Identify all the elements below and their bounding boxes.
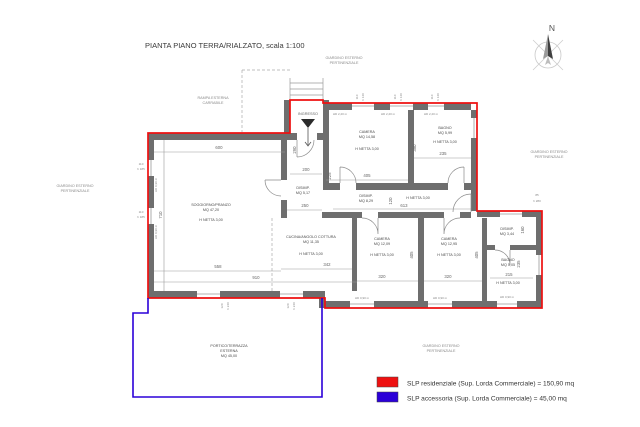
svg-text:h 280: h 280 xyxy=(533,199,541,203)
room-disimp3: DISIMP. xyxy=(500,227,513,231)
svg-text:h 140: h 140 xyxy=(361,93,365,101)
dim-235-bagno-sud: 235 xyxy=(516,260,521,268)
svg-text:MQ 14,58: MQ 14,58 xyxy=(359,135,375,139)
ingresso-label: INGRESSO xyxy=(298,112,318,116)
dim-160: 160 xyxy=(520,226,525,234)
dim-235-bagno-nord: 235 xyxy=(439,151,447,156)
svg-text:H NETTA 3,00: H NETTA 3,00 xyxy=(433,140,457,144)
svg-text:H NETTA 3,00: H NETTA 3,00 xyxy=(437,253,461,257)
sill-label-left-2: HD 0,90 m xyxy=(154,224,158,239)
dim-290: 290 xyxy=(292,146,297,154)
svg-text:H NETTA 3,00: H NETTA 3,00 xyxy=(355,147,379,151)
svg-text:H NETTA 3,00: H NETTA 3,00 xyxy=(496,281,520,285)
room-soggiorno: SOGGIORNO/PRANZO xyxy=(191,203,231,207)
dim-405-camera-se: 405 xyxy=(474,251,479,259)
floor-plan-canvas: PIANTA PIANO TERRA/RIALZATO, scala 1:100… xyxy=(0,0,640,427)
svg-text:MQ 3,44: MQ 3,44 xyxy=(500,232,514,236)
compass-icon: N xyxy=(533,23,563,70)
dim-320-camera-so: 320 xyxy=(378,274,386,279)
sill-label-high-3: HD 2,20 m xyxy=(424,112,439,116)
room-disimp1: DISIMP. xyxy=(296,186,309,190)
room-camera-se: CAMERA xyxy=(441,237,457,241)
svg-text:H NETTA 3,00: H NETTA 3,00 xyxy=(370,253,394,257)
window-label-top-2: 110 xyxy=(393,94,397,99)
rampa-label: RAMPA ESTERNA xyxy=(197,96,229,100)
compass-north-label: N xyxy=(549,23,555,33)
dim-910: 910 xyxy=(252,275,260,280)
door-label-portico-2: 120 xyxy=(286,303,290,308)
sill-label-low-3: HD 0,90 m xyxy=(500,295,515,299)
svg-text:H NETTA 3,00: H NETTA 3,00 xyxy=(406,196,430,200)
window-label-left-2: 110 xyxy=(139,210,144,214)
entrance-arrow-icon xyxy=(301,119,315,146)
giardino-label-west: GIARDINO ESTERNO xyxy=(56,184,93,188)
svg-text:h 185: h 185 xyxy=(137,215,145,219)
svg-text:MQ 12,95: MQ 12,95 xyxy=(441,242,457,246)
giardino-label-east: GIARDINO ESTERNO xyxy=(530,150,567,154)
svg-text:PERTINENZIALE: PERTINENZIALE xyxy=(330,61,359,65)
dim-250: 250 xyxy=(301,203,309,208)
dim-215: 215 xyxy=(505,272,513,277)
legend-label-residenziale: SLP residenziale (Sup. Lorda Commerciale… xyxy=(407,381,575,388)
svg-text:MQ 47,20: MQ 47,20 xyxy=(203,208,219,212)
svg-text:h 185: h 185 xyxy=(137,167,145,171)
sill-label-low-1: HD 0,90 m xyxy=(355,296,370,300)
svg-text:MQ 8,29: MQ 8,29 xyxy=(359,199,373,203)
svg-text:MQ 5,99: MQ 5,99 xyxy=(438,131,452,135)
room-portico: PORTICO/TERRAZZA xyxy=(210,344,248,348)
dim-200: 200 xyxy=(302,167,310,172)
window-label-left-1: 110 xyxy=(139,162,144,166)
dim-405-camera-nord: 405 xyxy=(363,173,371,178)
dim-613: 613 xyxy=(400,203,408,208)
sill-label-high-1: HD 2,20 m xyxy=(333,112,348,116)
dim-558: 558 xyxy=(214,264,222,269)
drawing-sheet: PIANTA PIANO TERRA/RIALZATO, scala 1:100… xyxy=(0,0,640,427)
room-cucina: CUCINA/ANGOLO COTTURA xyxy=(286,235,336,239)
svg-text:PERTINENZIALE: PERTINENZIALE xyxy=(535,155,564,159)
svg-text:CARRABILE: CARRABILE xyxy=(203,101,224,105)
svg-text:h 140: h 140 xyxy=(436,93,440,101)
page-title: PIANTA PIANO TERRA/RIALZATO, scala 1:100 xyxy=(145,41,305,50)
sill-label-high-2: HD 2,20 m xyxy=(381,112,396,116)
svg-text:MQ 45,00: MQ 45,00 xyxy=(221,354,237,358)
legend-label-accessoria: SLP accessoria (Sup. Lorda Commerciale) … xyxy=(407,396,567,403)
svg-text:MQ 5,05: MQ 5,05 xyxy=(501,263,515,267)
sill-label-left-1: HD 0,90 m xyxy=(154,177,158,192)
svg-text:PERTINENZIALE: PERTINENZIALE xyxy=(427,349,456,353)
window-label-top-3: 110 xyxy=(430,94,434,99)
dim-405-camera-so: 405 xyxy=(409,251,414,259)
svg-text:h 240: h 240 xyxy=(292,302,296,310)
dim-350: 350 xyxy=(412,144,417,152)
room-camera-so: CAMERA xyxy=(374,237,390,241)
room-bagno-nord: BAGNO xyxy=(438,126,451,130)
giardino-label-north: GIARDINO ESTERNO xyxy=(325,56,362,60)
svg-text:PERTINENZIALE: PERTINENZIALE xyxy=(61,189,90,193)
legend-swatch-residenziale xyxy=(377,377,398,387)
giardino-label-south: GIARDINO ESTERNO xyxy=(422,344,459,348)
dim-85: 85 xyxy=(535,193,539,197)
svg-text:H NETTA 3,00: H NETTA 3,00 xyxy=(299,252,323,256)
svg-text:MQ 5,17: MQ 5,17 xyxy=(296,191,310,195)
svg-text:MQ 12,09: MQ 12,09 xyxy=(374,242,390,246)
svg-text:h 240: h 240 xyxy=(226,302,230,310)
svg-text:h 140: h 140 xyxy=(399,93,403,101)
window-label-top-1: 110 xyxy=(355,94,359,99)
svg-text:ESTERNA: ESTERNA xyxy=(220,349,238,353)
svg-text:MQ 11,35: MQ 11,35 xyxy=(303,240,319,244)
dim-320-camera-se: 320 xyxy=(444,274,452,279)
door-label-portico-1: 120 xyxy=(220,303,224,308)
room-disimp2: DISIMP. xyxy=(359,194,372,198)
dim-710: 710 xyxy=(158,211,163,219)
svg-text:H NETTA 3,00: H NETTA 3,00 xyxy=(199,218,223,222)
dim-342: 342 xyxy=(323,262,331,267)
sill-label-low-2: HD 0,90 m xyxy=(433,296,448,300)
dim-600: 600 xyxy=(215,145,223,150)
dim-225: 225 xyxy=(327,172,332,180)
legend-swatch-accessoria xyxy=(377,392,398,402)
legend: SLP residenziale (Sup. Lorda Commerciale… xyxy=(377,377,575,403)
room-bagno-sud: BAGNO xyxy=(501,258,514,262)
room-camera-nord: CAMERA xyxy=(359,130,375,134)
dim-120: 120 xyxy=(388,197,393,205)
